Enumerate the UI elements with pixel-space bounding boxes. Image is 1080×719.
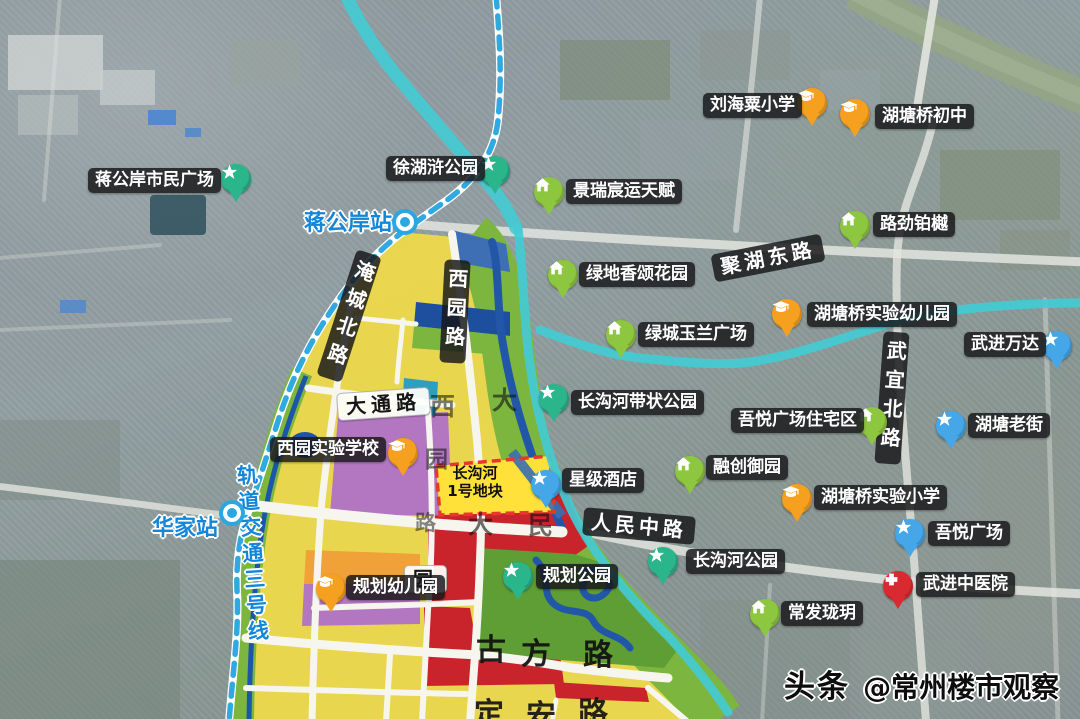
poi-label: 规划幼儿园 bbox=[346, 575, 445, 600]
graduation-cap-marker-icon bbox=[316, 574, 346, 604]
house-marker-icon bbox=[840, 211, 870, 241]
metro-station-label: 蒋公岸站 bbox=[304, 213, 392, 235]
poi-label: 路劲铂樾 bbox=[873, 212, 955, 237]
star-marker-icon bbox=[648, 547, 678, 577]
street-name-char: 路 bbox=[583, 641, 613, 671]
street-name-char: 大 bbox=[492, 388, 517, 413]
star-marker-icon bbox=[539, 384, 569, 414]
house-marker-icon bbox=[534, 177, 564, 207]
poi-label: 湖塘桥实验小学 bbox=[814, 485, 947, 510]
planning-map-image[interactable]: 长沟河 1号地块 头条 @常州楼市观察 刘海粟小学湖塘桥初中徐湖浒公园蒋公岸市民… bbox=[0, 0, 1080, 719]
watermark-brand: 头条 bbox=[784, 669, 850, 705]
graduation-cap-marker-icon bbox=[840, 99, 870, 129]
poi-label: 徐湖浒公园 bbox=[386, 156, 485, 181]
graduation-cap-marker-icon bbox=[782, 484, 812, 514]
house-marker-icon bbox=[606, 320, 636, 350]
street-name-char: 路 bbox=[415, 513, 436, 534]
metro-station-icon bbox=[223, 504, 241, 522]
metro-station-icon bbox=[396, 213, 414, 231]
poi-label: 湖塘桥初中 bbox=[875, 104, 974, 129]
graduation-cap-marker-icon bbox=[772, 299, 802, 329]
street-name-char: 安 bbox=[526, 702, 556, 719]
star-marker-icon bbox=[895, 519, 925, 549]
street-name-char: 西 bbox=[430, 394, 455, 419]
star-marker-icon bbox=[531, 470, 561, 500]
poi-label: 西园实验学校 bbox=[270, 437, 386, 462]
street-name-char: 方 bbox=[521, 640, 551, 670]
street-name-char: 民 bbox=[528, 513, 553, 538]
star-marker-icon bbox=[503, 562, 533, 592]
poi-label: 常发珑玥 bbox=[781, 601, 863, 626]
poi-label: 长沟河公园 bbox=[686, 549, 785, 574]
cross-marker-icon bbox=[883, 571, 913, 601]
star-marker-icon bbox=[1042, 331, 1072, 361]
house-marker-icon bbox=[675, 456, 705, 486]
house-marker-icon bbox=[548, 260, 578, 290]
watermark-handle: @常州楼市观察 bbox=[863, 671, 1059, 704]
street-name-char: 大 bbox=[468, 512, 493, 537]
poi-label: 刘海粟小学 bbox=[703, 93, 802, 118]
poi-label: 绿城玉兰广场 bbox=[638, 322, 754, 347]
parcel-label-line1: 长沟河 bbox=[434, 464, 516, 482]
poi-label: 景瑞宸运天赋 bbox=[566, 179, 682, 204]
poi-label: 武进万达 bbox=[964, 332, 1046, 357]
parcel-label: 长沟河 1号地块 bbox=[434, 464, 516, 500]
star-marker-icon bbox=[221, 164, 251, 194]
poi-label: 吾悦广场 bbox=[928, 521, 1010, 546]
poi-label: 吾悦广场住宅区 bbox=[731, 408, 864, 433]
poi-label: 湖塘桥实验幼儿园 bbox=[807, 302, 957, 327]
house-marker-icon bbox=[750, 599, 780, 629]
street-name-char: 路 bbox=[578, 699, 608, 719]
street-name-char: 古 bbox=[476, 636, 506, 666]
poi-label: 长沟河带状公园 bbox=[571, 390, 704, 415]
metro-station-label: 华家站 bbox=[152, 518, 218, 540]
star-marker-icon bbox=[936, 411, 966, 441]
poi-label: 武进中医院 bbox=[916, 572, 1015, 597]
poi-label: 星级酒店 bbox=[562, 468, 644, 493]
graduation-cap-marker-icon bbox=[388, 438, 418, 468]
poi-label: 规划公园 bbox=[536, 564, 618, 589]
poi-label: 湖塘老街 bbox=[968, 413, 1050, 438]
road-badge: 西园路 bbox=[439, 259, 470, 363]
street-name-char: 定 bbox=[474, 700, 504, 719]
poi-label: 蒋公岸市民广场 bbox=[88, 168, 221, 193]
parcel-label-line2: 1号地块 bbox=[434, 482, 516, 500]
watermark: 头条 @常州楼市观察 bbox=[784, 661, 1059, 706]
poi-label: 融创御园 bbox=[706, 455, 788, 480]
poi-label: 绿地香颂花园 bbox=[579, 262, 695, 287]
